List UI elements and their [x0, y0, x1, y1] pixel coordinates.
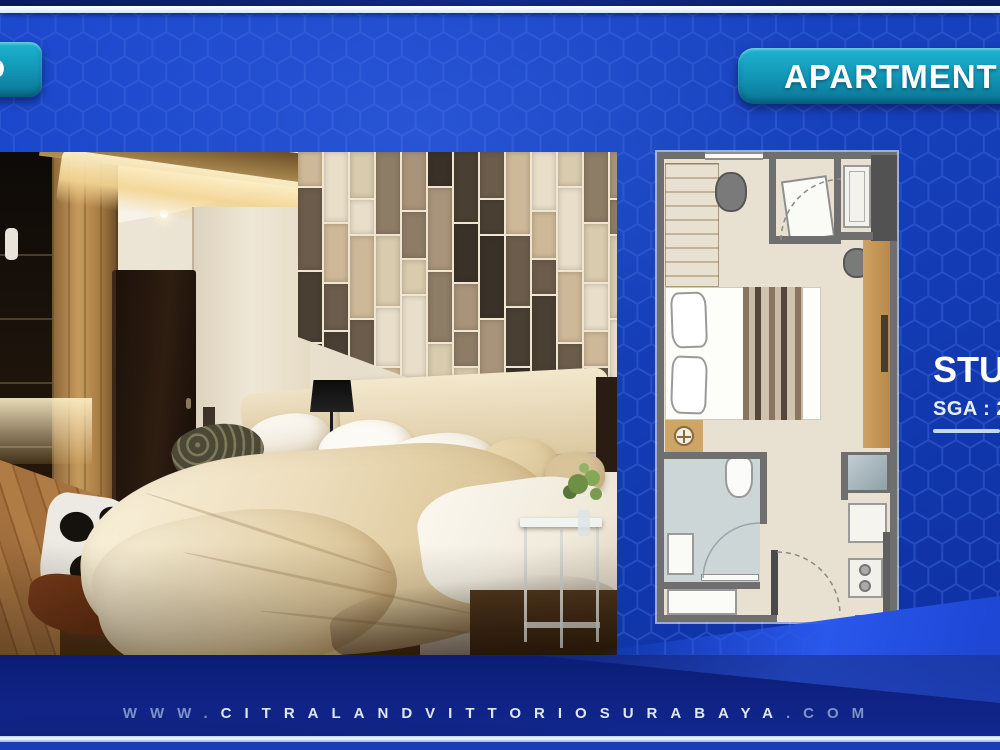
left-badge: O — [0, 42, 42, 97]
main-door-swing-arc — [777, 552, 840, 614]
bedroom-photo — [0, 152, 617, 656]
website-url: WWW.CITRALANDVITTORIOSURABAYA.COM — [0, 705, 1000, 722]
floor-plan — [657, 152, 897, 622]
presentation-slide: O APARTMENT — [0, 0, 1000, 750]
entry-door-swing-arc — [781, 179, 841, 240]
photo-vignette — [0, 152, 617, 656]
top-white-stripe — [0, 6, 1000, 13]
footer-band: WWW.CITRALANDVITTORIOSURABAYA.COM — [0, 655, 1000, 750]
unit-divider-line — [933, 429, 1000, 433]
unit-type-label: STUDIO — [933, 351, 1000, 393]
door-swing-arcs — [657, 152, 897, 622]
website-name: CITRALANDVITTORIOSURABAYA — [221, 705, 786, 722]
unit-sga-label: SGA : 2 — [933, 398, 1000, 422]
left-badge-partial-letter: O — [0, 54, 5, 85]
footer-bottom-strip — [0, 742, 1000, 750]
website-suffix: .COM — [786, 705, 877, 722]
bathroom-door-swing-arc — [703, 523, 760, 578]
website-prefix: WWW. — [123, 705, 221, 722]
apartment-badge-label: APARTMENT — [784, 58, 998, 96]
apartment-badge: APARTMENT — [738, 48, 1000, 104]
